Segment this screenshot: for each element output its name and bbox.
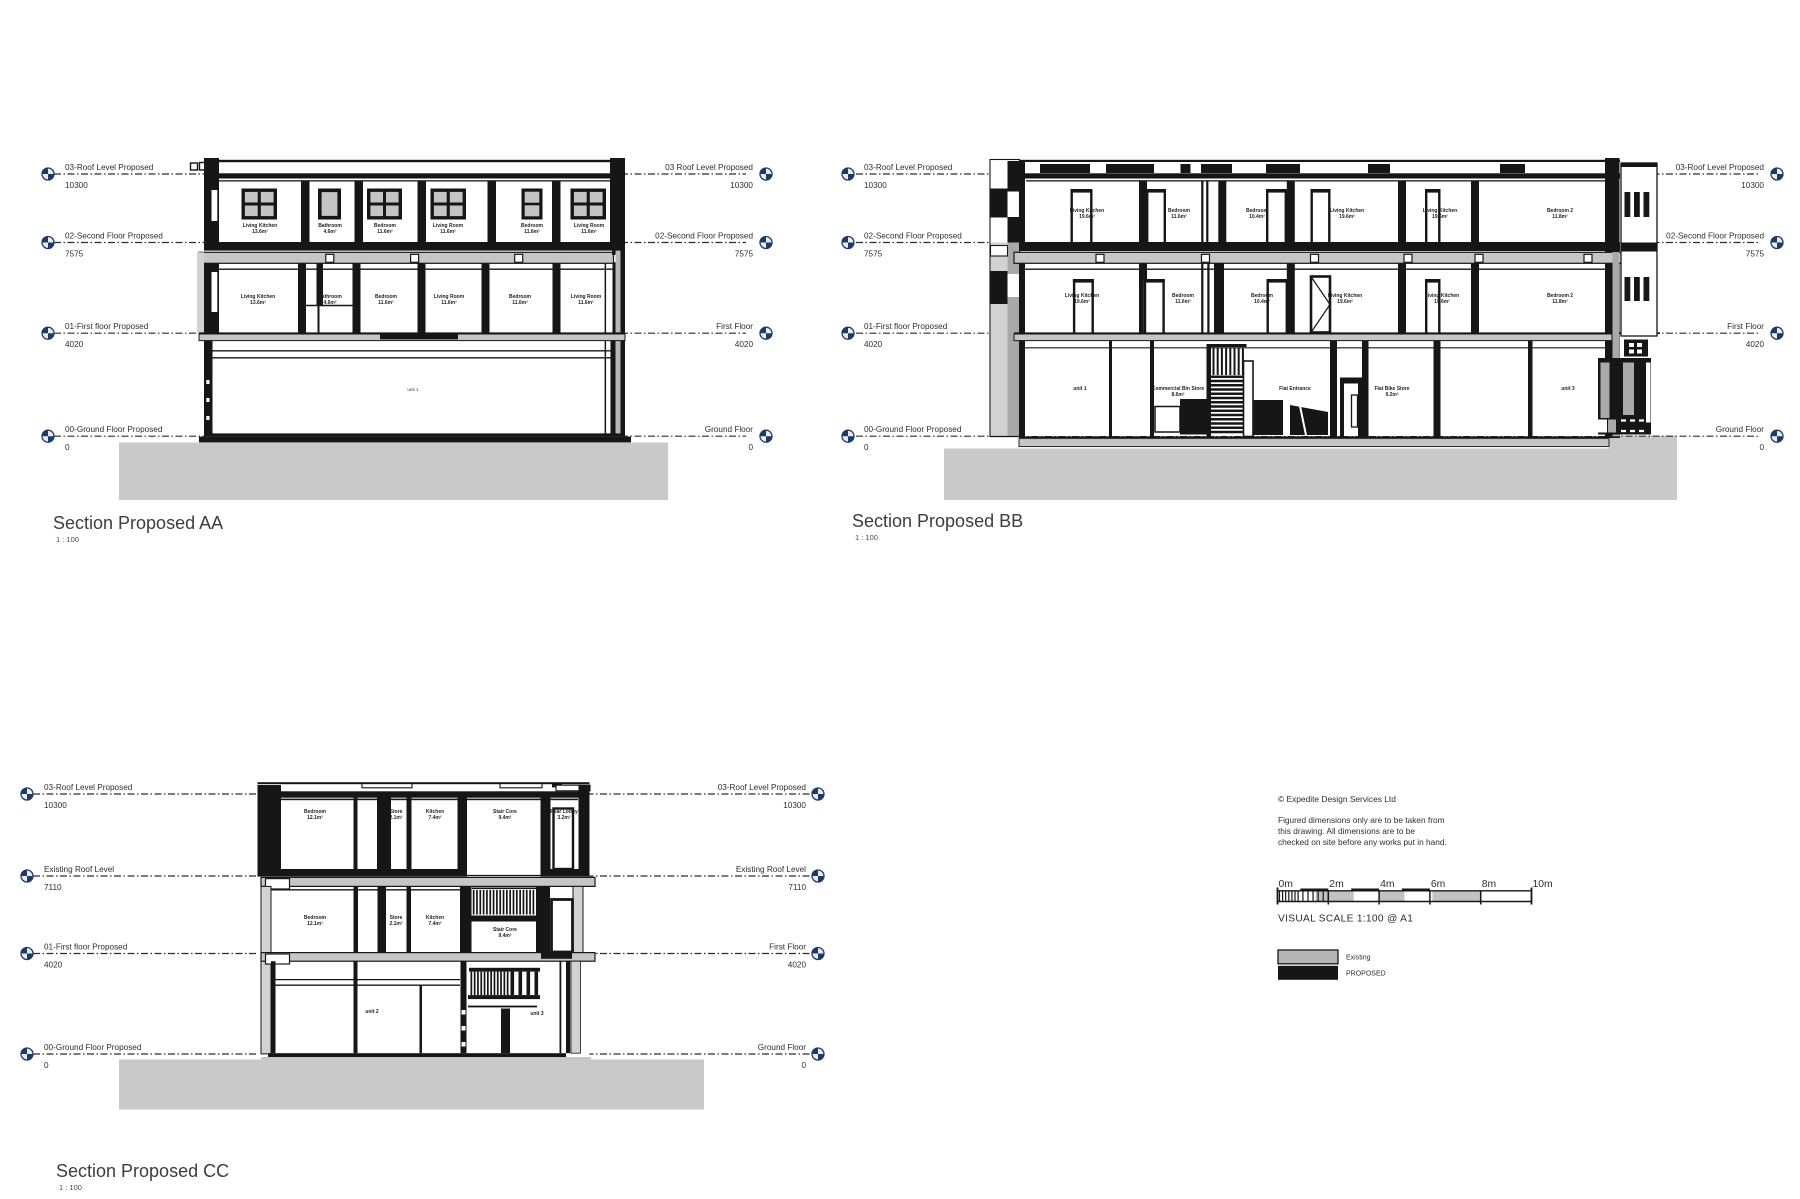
svg-text:PROPOSED: PROPOSED bbox=[1346, 971, 1386, 978]
svg-text:2.1m²: 2.1m² bbox=[389, 815, 402, 821]
svg-text:10300: 10300 bbox=[783, 801, 806, 810]
svg-text:First Floor: First Floor bbox=[1727, 322, 1764, 331]
svg-text:2m: 2m bbox=[1329, 879, 1343, 890]
svg-text:6m: 6m bbox=[1431, 879, 1445, 890]
svg-text:00-Ground Floor Proposed: 00-Ground Floor Proposed bbox=[44, 1043, 142, 1052]
svg-text:11.8m²: 11.8m² bbox=[1552, 214, 1568, 220]
svg-text:12.1m²: 12.1m² bbox=[307, 921, 323, 927]
svg-text:7575: 7575 bbox=[864, 250, 883, 259]
svg-text:7.4m²: 7.4m² bbox=[428, 815, 441, 821]
svg-text:0: 0 bbox=[1759, 443, 1764, 452]
svg-text:03 Roof Level Proposed: 03 Roof Level Proposed bbox=[665, 163, 753, 172]
svg-text:0: 0 bbox=[801, 1061, 806, 1070]
svg-text:4020: 4020 bbox=[864, 340, 883, 349]
svg-text:0: 0 bbox=[44, 1061, 49, 1070]
svg-text:02-Second Floor Proposed: 02-Second Floor Proposed bbox=[655, 232, 753, 241]
svg-text:11.6m²: 11.6m² bbox=[378, 300, 394, 306]
svg-text:© Expedite Design Services Ltd: © Expedite Design Services Ltd bbox=[1278, 794, 1396, 804]
svg-text:4020: 4020 bbox=[44, 961, 63, 970]
svg-text:11.6m²: 11.6m² bbox=[440, 229, 456, 235]
svg-text:Flat Entrance: Flat Entrance bbox=[1279, 386, 1311, 392]
svg-text:03-Roof Level Proposed: 03-Roof Level Proposed bbox=[44, 783, 133, 792]
svg-text:7575: 7575 bbox=[1746, 250, 1765, 259]
svg-text:2.1m²: 2.1m² bbox=[389, 921, 402, 927]
svg-text:Figured dimensions only are to: Figured dimensions only are to be taken … bbox=[1278, 815, 1445, 825]
svg-text:unit 3: unit 3 bbox=[1561, 386, 1575, 392]
svg-text:Ground Floor: Ground Floor bbox=[705, 425, 754, 434]
svg-text:02-Second Floor Proposed: 02-Second Floor Proposed bbox=[65, 232, 163, 241]
svg-text:13.6m²: 13.6m² bbox=[252, 229, 268, 235]
svg-text:0m: 0m bbox=[1279, 879, 1293, 890]
svg-text:3.2m²: 3.2m² bbox=[557, 815, 570, 821]
svg-text:4020: 4020 bbox=[65, 340, 84, 349]
svg-text:4m: 4m bbox=[1380, 879, 1394, 890]
svg-text:0: 0 bbox=[864, 443, 869, 452]
svg-text:Section Proposed CC: Section Proposed CC bbox=[56, 1161, 229, 1181]
svg-text:11.8m²: 11.8m² bbox=[1552, 299, 1568, 305]
svg-text:11.6m²: 11.6m² bbox=[1171, 214, 1187, 220]
svg-text:unit 3: unit 3 bbox=[530, 1011, 544, 1017]
svg-text:9.4m²: 9.4m² bbox=[498, 933, 511, 939]
svg-text:Section Proposed BB: Section Proposed BB bbox=[852, 511, 1023, 531]
svg-text:11.6m²: 11.6m² bbox=[578, 300, 594, 306]
svg-text:10300: 10300 bbox=[730, 181, 753, 190]
svg-text:01-First floor Proposed: 01-First floor Proposed bbox=[65, 322, 149, 331]
svg-text:Existing Roof Level: Existing Roof Level bbox=[736, 865, 806, 874]
svg-text:9.4m²: 9.4m² bbox=[498, 815, 511, 821]
svg-text:19.6m²: 19.6m² bbox=[1079, 214, 1095, 220]
svg-text:8.6m²: 8.6m² bbox=[1171, 392, 1184, 398]
svg-text:4020: 4020 bbox=[735, 340, 754, 349]
svg-text:1 : 100: 1 : 100 bbox=[56, 535, 79, 544]
svg-text:11.6m²: 11.6m² bbox=[377, 229, 393, 235]
svg-text:12.1m²: 12.1m² bbox=[307, 815, 323, 821]
svg-text:03-Roof Level Proposed: 03-Roof Level Proposed bbox=[1676, 163, 1765, 172]
svg-text:10300: 10300 bbox=[65, 181, 88, 190]
svg-text:11.6m²: 11.6m² bbox=[1175, 299, 1191, 305]
svg-text:unit 2: unit 2 bbox=[365, 1009, 379, 1015]
svg-text:unit 1: unit 1 bbox=[407, 387, 419, 392]
svg-text:4020: 4020 bbox=[788, 961, 807, 970]
svg-text:10300: 10300 bbox=[1741, 181, 1764, 190]
svg-text:10.4m²: 10.4m² bbox=[1254, 299, 1270, 305]
svg-text:00-Ground Floor Proposed: 00-Ground Floor Proposed bbox=[864, 425, 962, 434]
svg-text:4.6m²: 4.6m² bbox=[323, 229, 336, 235]
svg-text:1 : 100: 1 : 100 bbox=[59, 1183, 82, 1192]
svg-text:VISUAL SCALE 1:100 @ A1: VISUAL SCALE 1:100 @ A1 bbox=[1278, 914, 1413, 925]
svg-text:10300: 10300 bbox=[44, 801, 67, 810]
svg-text:03-Roof Level Proposed: 03-Roof Level Proposed bbox=[864, 163, 953, 172]
svg-text:01-First floor Proposed: 01-First floor Proposed bbox=[864, 322, 948, 331]
svg-text:10300: 10300 bbox=[864, 181, 887, 190]
svg-text:10.4m²: 10.4m² bbox=[1249, 214, 1265, 220]
svg-text:7575: 7575 bbox=[65, 250, 84, 259]
svg-text:03-Roof Level Proposed: 03-Roof Level Proposed bbox=[718, 783, 807, 792]
svg-text:4020: 4020 bbox=[1746, 340, 1765, 349]
svg-text:Section Proposed AA: Section Proposed AA bbox=[53, 513, 223, 533]
svg-text:19.6m²: 19.6m² bbox=[1339, 214, 1355, 220]
svg-text:7110: 7110 bbox=[788, 883, 806, 892]
svg-text:unit 1: unit 1 bbox=[1073, 386, 1087, 392]
svg-text:this drawing. All dimensions: this drawing. All dimensions are to be bbox=[1278, 826, 1415, 836]
svg-text:4.6m²: 4.6m² bbox=[323, 300, 336, 306]
svg-text:03-Roof Level Proposed: 03-Roof Level Proposed bbox=[65, 163, 154, 172]
svg-text:7.4m²: 7.4m² bbox=[428, 921, 441, 927]
svg-text:02-Second Floor Proposed: 02-Second Floor Proposed bbox=[1666, 232, 1764, 241]
svg-text:02-Second Floor Proposed: 02-Second Floor Proposed bbox=[864, 232, 962, 241]
svg-text:Existing Roof Level: Existing Roof Level bbox=[44, 865, 114, 874]
svg-text:Ground Floor: Ground Floor bbox=[1716, 425, 1765, 434]
svg-text:9.2m²: 9.2m² bbox=[1385, 392, 1398, 398]
svg-text:19.6m²: 19.6m² bbox=[1074, 299, 1090, 305]
svg-text:19.6m²: 19.6m² bbox=[1337, 299, 1353, 305]
svg-text:1 : 100: 1 : 100 bbox=[855, 533, 878, 542]
svg-text:19.6m²: 19.6m² bbox=[1434, 299, 1450, 305]
svg-text:Ground Floor: Ground Floor bbox=[758, 1043, 807, 1052]
svg-text:8m: 8m bbox=[1482, 879, 1496, 890]
svg-text:checked on site before any wor: checked on site before any works put in … bbox=[1278, 837, 1447, 847]
svg-text:First Floor: First Floor bbox=[716, 322, 753, 331]
svg-text:11.6m²: 11.6m² bbox=[441, 300, 457, 306]
svg-text:13.6m²: 13.6m² bbox=[250, 300, 266, 306]
svg-text:01-First floor Proposed: 01-First floor Proposed bbox=[44, 943, 128, 952]
svg-text:7575: 7575 bbox=[735, 250, 754, 259]
svg-text:0: 0 bbox=[65, 443, 70, 452]
svg-text:11.6m²: 11.6m² bbox=[512, 300, 528, 306]
svg-text:10m: 10m bbox=[1533, 879, 1553, 890]
svg-text:00-Ground Floor Proposed: 00-Ground Floor Proposed bbox=[65, 425, 163, 434]
svg-text:11.6m²: 11.6m² bbox=[581, 229, 597, 235]
svg-text:First Floor: First Floor bbox=[769, 943, 806, 952]
svg-text:Existing: Existing bbox=[1346, 955, 1371, 962]
svg-text:19.6m²: 19.6m² bbox=[1432, 214, 1448, 220]
svg-text:11.6m²: 11.6m² bbox=[524, 229, 540, 235]
svg-text:7110: 7110 bbox=[44, 883, 62, 892]
svg-text:0: 0 bbox=[748, 443, 753, 452]
